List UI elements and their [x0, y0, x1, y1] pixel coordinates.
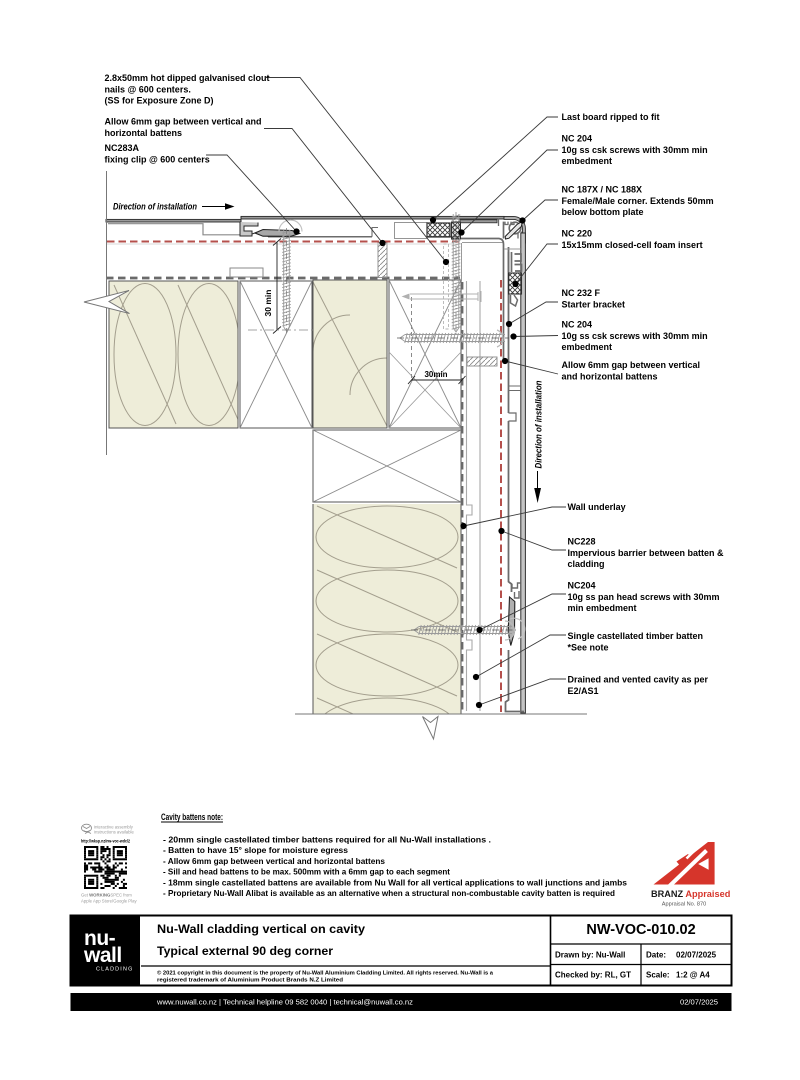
- svg-text:10g ss csk screws with 30mm mi: 10g ss csk screws with 30mm min: [562, 145, 708, 155]
- svg-text:NC 187X / NC 188X: NC 187X / NC 188X: [562, 185, 643, 195]
- svg-text:Direction of installation: Direction of installation: [113, 202, 197, 212]
- svg-text:cladding: cladding: [568, 559, 605, 569]
- svg-text:- 18mm single castellated batt: - 18mm single castellated battens are av…: [163, 877, 627, 887]
- svg-text:Female/Male corner. Extends 50: Female/Male corner. Extends 50mm: [562, 196, 714, 206]
- svg-text:Scale:: Scale:: [646, 971, 670, 980]
- svg-text:Date:: Date:: [646, 951, 666, 960]
- svg-text:NC283A: NC283A: [105, 143, 140, 153]
- svg-text:embedment: embedment: [562, 342, 613, 352]
- svg-text:2.8x50mm hot dipped galvanised: 2.8x50mm hot dipped galvanised clout: [105, 73, 270, 83]
- svg-text:Nu-Wall cladding vertical on c: Nu-Wall cladding vertical on cavity: [157, 922, 365, 936]
- svg-text:10g ss pan head screws with 30: 10g ss pan head screws with 30mm: [568, 592, 720, 602]
- svg-text:NC 220: NC 220: [562, 229, 593, 239]
- svg-text:Apple App Store/Google Play: Apple App Store/Google Play: [81, 899, 138, 904]
- svg-text:Typical external 90 deg corner: Typical external 90 deg corner: [157, 944, 333, 958]
- svg-text:- 20mm single castellated timb: - 20mm single castellated timber battens…: [163, 835, 491, 845]
- svg-text:E2/AS1: E2/AS1: [568, 686, 599, 696]
- svg-text:and horizontal battens: and horizontal battens: [562, 371, 658, 381]
- svg-text:below bottom plate: below bottom plate: [562, 207, 644, 217]
- svg-text:Allow 6mm gap between vertical: Allow 6mm gap between vertical and: [105, 117, 262, 127]
- svg-text:www.nuwall.co.nz | Technical: www.nuwall.co.nz | Technical helpline 09…: [156, 998, 413, 1007]
- svg-text:CLADDING: CLADDING: [96, 967, 133, 973]
- svg-text:embedment: embedment: [562, 156, 613, 166]
- svg-text:02/07/2025: 02/07/2025: [676, 951, 717, 960]
- svg-text:- Allow 6mm gap between vertic: - Allow 6mm gap between vertical and hor…: [163, 856, 385, 866]
- svg-text:- Batten to have 15° slope for: - Batten to have 15° slope for moisture …: [163, 845, 348, 855]
- svg-text:Allow 6mm gap between vertical: Allow 6mm gap between vertical: [562, 360, 701, 370]
- svg-text:Impervious barrier between bat: Impervious barrier between batten &: [568, 548, 725, 558]
- svg-text:30 min: 30 min: [263, 290, 273, 317]
- svg-text:horizontal battens: horizontal battens: [105, 128, 183, 138]
- svg-text:nails @ 600 centers.: nails @ 600 centers.: [105, 84, 191, 94]
- svg-text:Wall underlay: Wall underlay: [568, 502, 626, 512]
- svg-text:Drained and vented cavity as p: Drained and vented cavity as per: [568, 675, 709, 685]
- svg-text:Cavity battens note:: Cavity battens note:: [161, 812, 223, 822]
- svg-text:NC 232 F: NC 232 F: [562, 288, 601, 298]
- svg-text:instructions available: instructions available: [94, 830, 134, 835]
- svg-text:NC228: NC228: [568, 537, 596, 547]
- svg-text:Single castellated timber batt: Single castellated timber batten: [568, 631, 704, 641]
- svg-text:30min: 30min: [424, 370, 447, 379]
- svg-text:10g ss csk screws with 30mm mi: 10g ss csk screws with 30mm min: [562, 331, 708, 341]
- svg-text:(SS for Exposure Zone D): (SS for Exposure Zone D): [105, 96, 214, 106]
- svg-text:Appraisal No. 870: Appraisal No. 870: [662, 902, 706, 908]
- svg-text:- Proprietary Nu-Wall Alibat i: - Proprietary Nu-Wall Alibat is availabl…: [163, 888, 615, 898]
- svg-text:NW-VOC-010.02: NW-VOC-010.02: [586, 922, 695, 938]
- svg-text:© 2021 copyright in this docum: © 2021 copyright in this document is the…: [157, 970, 493, 977]
- svg-text:*See note: *See note: [568, 642, 609, 652]
- svg-text:Drawn by: Nu-Wall: Drawn by: Nu-Wall: [555, 951, 625, 960]
- svg-text:- Sill and head battens to be: - Sill and head battens to be max. 500mm…: [163, 867, 450, 877]
- svg-text:02/07/2025: 02/07/2025: [680, 998, 718, 1007]
- svg-text:registered trademark of Alumin: registered trademark of Aluminium Produc…: [157, 978, 343, 984]
- svg-text:http://wksp.nz/nw-voc-wdc/2: http://wksp.nz/nw-voc-wdc/2: [81, 839, 130, 844]
- svg-text:Checked by: RL, GT: Checked by: RL, GT: [555, 971, 631, 980]
- svg-text:NC204: NC204: [568, 581, 596, 591]
- svg-text:NC 204: NC 204: [562, 134, 593, 144]
- svg-text:Starter bracket: Starter bracket: [562, 299, 626, 309]
- svg-text:Direction of installation: Direction of installation: [534, 380, 544, 468]
- svg-text:Get WORKINGSPEC from: Get WORKINGSPEC from: [81, 893, 132, 898]
- svg-text:Last board ripped to fit: Last board ripped to fit: [562, 112, 660, 122]
- svg-text:wall: wall: [83, 944, 122, 967]
- svg-text:1:2 @ A4: 1:2 @ A4: [676, 971, 710, 980]
- svg-text:BRANZ Appraised: BRANZ Appraised: [651, 889, 730, 899]
- svg-text:15x15mm closed-cell foam inser: 15x15mm closed-cell foam insert: [562, 240, 703, 250]
- svg-text:min embedment: min embedment: [568, 603, 637, 613]
- svg-text:NC 204: NC 204: [562, 320, 593, 330]
- svg-text:fixing clip @ 600 centers: fixing clip @ 600 centers: [105, 154, 210, 164]
